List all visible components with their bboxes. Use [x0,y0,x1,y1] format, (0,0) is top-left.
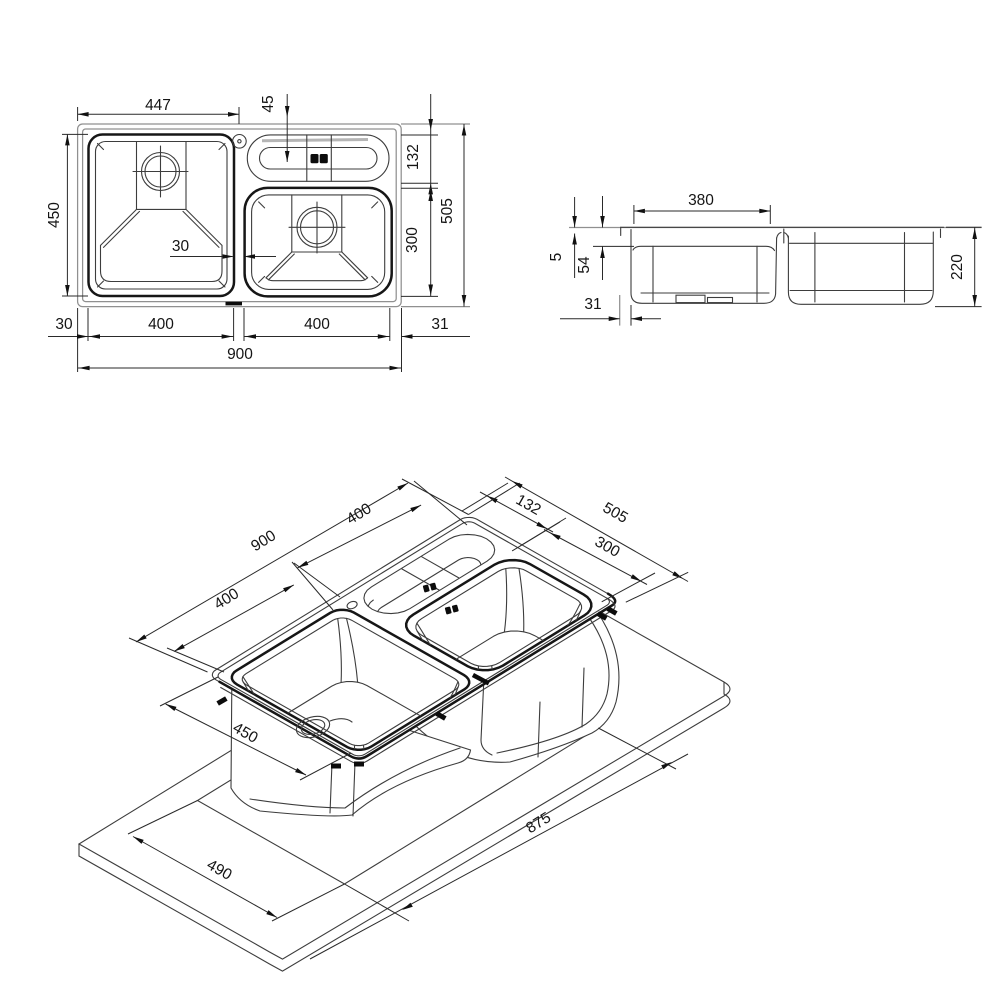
svg-text:400: 400 [148,316,174,333]
svg-text:30: 30 [55,316,73,333]
svg-text:132: 132 [405,144,422,170]
svg-text:400: 400 [304,316,330,333]
svg-text:31: 31 [431,316,448,333]
svg-text:900: 900 [227,346,253,363]
svg-text:447: 447 [145,97,171,114]
svg-text:450: 450 [46,202,63,228]
svg-text:5: 5 [548,253,565,262]
svg-text:505: 505 [439,198,456,224]
svg-text:380: 380 [688,192,714,209]
svg-text:300: 300 [404,227,421,253]
svg-text:31: 31 [584,296,601,313]
svg-text:54: 54 [576,256,593,274]
svg-text:220: 220 [949,254,966,280]
svg-text:30: 30 [172,238,190,255]
svg-text:45: 45 [260,95,277,112]
